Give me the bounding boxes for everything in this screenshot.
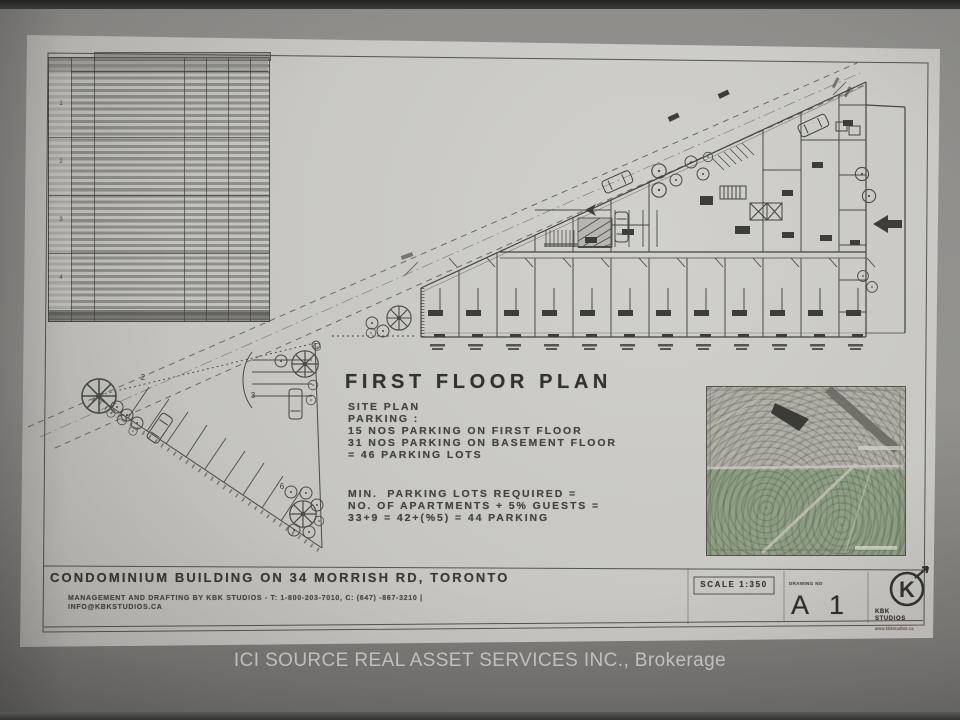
- photo-top-band: [0, 0, 960, 9]
- area-label-2: 2: [141, 373, 146, 382]
- sheet-number: A 1: [791, 590, 851, 621]
- photo-bottom-band: [0, 712, 960, 720]
- entry-arrow: [873, 215, 902, 233]
- map-road-dark: [828, 389, 897, 450]
- keymap-features: [707, 387, 903, 553]
- project-title: CONDOMINIUM BUILDING ON 34 MORRISH RD, T…: [50, 570, 509, 585]
- cars: [146, 113, 830, 444]
- furniture-marks: [401, 77, 902, 260]
- scale-label: SCALE 1:350: [694, 580, 774, 589]
- plan-heading: FIRST FLOOR PLAN: [345, 371, 612, 394]
- unit-partition-walls: [459, 95, 866, 337]
- parking-calc-line: 33+9 = 42+(%5) = 44 PARKING: [348, 512, 549, 524]
- area-label-6: 6: [280, 482, 285, 491]
- brokerage-watermark: ICI SOURCE REAL ASSET SERVICES INC., Bro…: [0, 650, 960, 672]
- credit-line: MANAGEMENT AND DRAFTING BY KBK STUDIOS -…: [68, 595, 423, 602]
- logo-letter: K: [899, 577, 915, 602]
- sheet-border: [43, 53, 928, 632]
- area-label-3: 3: [251, 391, 256, 400]
- parking-calc-line: NO. OF APARTMENTS + 5% GUESTS =: [348, 500, 600, 512]
- parking-stalls: [128, 387, 302, 521]
- logo-url: www.kbkstudios.ca: [875, 626, 914, 631]
- interior-parking-stalls: [615, 210, 657, 247]
- map-site-marker: [771, 403, 809, 431]
- parking-calc-line: MIN. PARKING LOTS REQUIRED =: [348, 488, 577, 500]
- site-note-line: 31 NOS PARKING ON BASEMENT FLOOR: [348, 437, 617, 449]
- site-note-line: = 46 PARKING LOTS: [348, 449, 483, 461]
- logo-name: KBK STUDIOS: [875, 609, 915, 623]
- logo-arrow: [915, 567, 928, 578]
- drawing-no-label: DRAWING NO: [789, 581, 825, 586]
- photographed-drawing-sheet: 1 2 3 4: [0, 0, 960, 720]
- building-outline: [421, 82, 905, 337]
- site-note-line: PARKING :: [348, 413, 419, 425]
- credit-email: INFO@KBKSTUDIOS.CA: [68, 604, 162, 611]
- hatch-band: [93, 399, 320, 551]
- site-note-line: SITE PLAN: [348, 401, 420, 413]
- kbk-logo: K: [891, 567, 928, 605]
- site-note-line: 15 NOS PARKING ON FIRST FLOOR: [348, 425, 583, 437]
- unit-furniture: [428, 258, 875, 350]
